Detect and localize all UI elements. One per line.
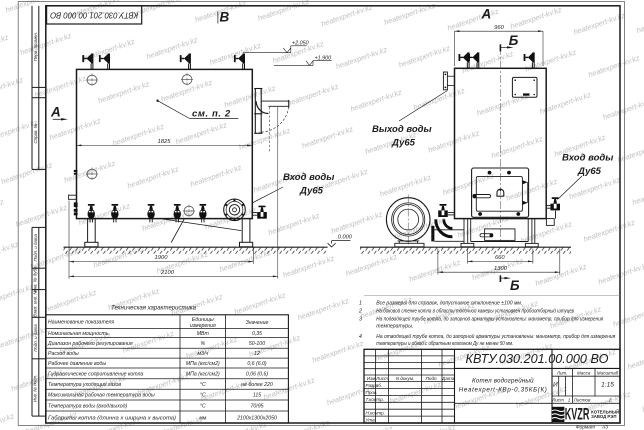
svg-text:1:15: 1:15 bbox=[601, 382, 614, 389]
svg-text:Значение: Значение bbox=[246, 320, 269, 326]
svg-text:3: 3 bbox=[359, 317, 362, 323]
svg-text:Утв.: Утв. bbox=[366, 418, 376, 423]
svg-text:0,06 (0,6): 0,06 (0,6) bbox=[246, 371, 268, 377]
svg-text:мм: мм bbox=[199, 415, 207, 421]
svg-text:Б: Б bbox=[509, 33, 519, 48]
svg-text:И: И bbox=[553, 382, 558, 389]
svg-text:МПа (кгс/см2): МПа (кгс/см2) bbox=[186, 361, 220, 367]
svg-text:N докум.: N докум. bbox=[396, 376, 415, 381]
svg-text:Расход воды: Расход воды bbox=[48, 351, 79, 357]
svg-text:Инв. № дубл.: Инв. № дубл. bbox=[33, 265, 38, 292]
svg-text:Рабочее давление воды: Рабочее давление воды bbox=[48, 361, 106, 367]
svg-text:Перв. примен.: Перв. примен. bbox=[33, 32, 38, 61]
svg-text:Подп. и дата: Подп. и дата bbox=[33, 234, 38, 262]
svg-text:115: 115 bbox=[253, 393, 261, 399]
svg-text:660: 660 bbox=[495, 255, 505, 261]
svg-text:2: 2 bbox=[358, 309, 362, 315]
svg-text:Разраб.: Разраб. bbox=[366, 383, 383, 388]
svg-text:Техническая характеристика: Техническая характеристика bbox=[111, 306, 197, 312]
svg-text:не более 220: не более 220 bbox=[241, 382, 273, 388]
svg-text:Ду65: Ду65 bbox=[577, 166, 602, 177]
svg-text:Б: Б bbox=[510, 278, 520, 293]
svg-text:Листов: Листов bbox=[573, 398, 591, 403]
svg-text:°С: °С bbox=[200, 382, 206, 388]
svg-text:Габариты котла (длинна х ширин: Габариты котла (длинна х ширина х высота… bbox=[48, 415, 176, 421]
svg-text:На подводящей трубе котла, до: На подводящей трубе котла, до запорной а… bbox=[376, 316, 603, 323]
svg-text:А3: А3 bbox=[601, 424, 608, 430]
svg-text:см. п. 2: см. п. 2 bbox=[192, 109, 231, 120]
svg-text:2: 2 bbox=[608, 398, 612, 403]
svg-text:Температура уходящих газов: Температура уходящих газов bbox=[48, 382, 121, 388]
svg-text:0,35: 0,35 bbox=[252, 331, 262, 337]
svg-text:+2.050: +2.050 bbox=[292, 40, 309, 46]
svg-text:Номинальная мощность: Номинальная мощность bbox=[48, 331, 109, 337]
svg-text:На боковой стенке котла в обла: На боковой стенке котла в области топочн… bbox=[376, 308, 574, 315]
svg-text:Инв. № подл.: Инв. № подл. bbox=[33, 375, 38, 402]
svg-text:1825: 1825 bbox=[158, 139, 172, 145]
svg-text:Все размеры для справок, допус: Все размеры для справок, допустимое откл… bbox=[376, 300, 522, 306]
svg-text:Ду65: Ду65 bbox=[299, 186, 324, 197]
svg-text:МВт: МВт bbox=[197, 331, 210, 337]
svg-text:В: В bbox=[220, 10, 230, 25]
svg-text:%: % bbox=[200, 341, 205, 347]
svg-text:70/95: 70/95 bbox=[251, 404, 264, 410]
svg-text:Лист: Лист bbox=[551, 398, 564, 403]
svg-text:Вход воды: Вход воды bbox=[283, 172, 334, 183]
svg-text:Подп. и дата: Подп. и дата bbox=[33, 324, 38, 352]
svg-text:2100х1300х2050: 2100х1300х2050 bbox=[236, 415, 277, 421]
svg-text:Вход воды: Вход воды bbox=[562, 153, 613, 164]
svg-text:м3/ч: м3/ч bbox=[198, 351, 209, 357]
svg-text:Дата: Дата bbox=[441, 376, 455, 381]
svg-text:Н.контр.: Н.контр. bbox=[366, 411, 385, 416]
svg-text:°С: °С bbox=[200, 393, 206, 399]
svg-text:Формат: Формат bbox=[576, 424, 595, 430]
svg-text:Температура воды (вход/выход): Температура воды (вход/выход) bbox=[48, 404, 127, 410]
svg-text:Масштаб: Масштаб bbox=[597, 370, 619, 375]
svg-text:Пров.: Пров. bbox=[366, 390, 378, 395]
svg-text:Гидравлическое сопротивление к: Гидравлическое сопротивление котла bbox=[48, 371, 143, 377]
svg-text:Ду65: Ду65 bbox=[391, 138, 416, 149]
svg-text:1300: 1300 bbox=[494, 266, 508, 272]
svg-text:измерения: измерения bbox=[190, 323, 216, 329]
svg-text:Лит.: Лит. bbox=[556, 370, 568, 375]
svg-text:Heatexpert-КВр-0,35КБ(К): Heatexpert-КВр-0,35КБ(К) bbox=[459, 387, 547, 394]
svg-text:960: 960 bbox=[494, 25, 504, 31]
svg-text:Подп.: Подп. bbox=[426, 376, 438, 381]
svg-text:Наименование показателя: Наименование показателя bbox=[48, 320, 114, 326]
svg-text:Единицы: Единицы bbox=[192, 317, 214, 323]
svg-text:Т.контр.: Т.контр. bbox=[366, 397, 385, 402]
svg-text:°С: °С bbox=[200, 404, 206, 410]
svg-text:Масса: Масса bbox=[577, 370, 591, 375]
svg-text:ЗАВОД РЭП: ЗАВОД РЭП bbox=[591, 414, 616, 419]
svg-text:12: 12 bbox=[254, 351, 260, 357]
svg-text:А: А bbox=[481, 7, 492, 22]
svg-text:Справ. №: Справ. № bbox=[33, 123, 38, 143]
svg-text:температуры и обвод с обратным: температуры и обвод с обратным клапаном … bbox=[376, 341, 513, 347]
svg-text:Лист: Лист bbox=[375, 376, 388, 381]
svg-text:2100: 2100 bbox=[160, 270, 175, 276]
svg-text:КВТУ.030.201.00.000 ВО: КВТУ.030.201.00.000 ВО bbox=[466, 351, 609, 366]
svg-text:50-100: 50-100 bbox=[249, 341, 265, 347]
svg-text:Взам. инв. №: Взам. инв. № bbox=[33, 290, 38, 317]
svg-text:На отводящей трубе котла, до з: На отводящей трубе котла, до запорной ар… bbox=[376, 333, 615, 340]
svg-text:температуры.: температуры. bbox=[376, 323, 413, 329]
svg-text:Выход воды: Выход воды bbox=[372, 124, 432, 135]
svg-text:МПа (кгс/см2): МПа (кгс/см2) bbox=[186, 371, 220, 377]
svg-text:1: 1 bbox=[568, 398, 571, 403]
svg-text:4: 4 bbox=[359, 334, 362, 340]
svg-text:А: А bbox=[50, 105, 61, 120]
svg-text:Котел водогрейный: Котел водогрейный bbox=[472, 378, 534, 385]
svg-text:0,6 (6,0): 0,6 (6,0) bbox=[247, 361, 267, 367]
svg-text:+1.900: +1.900 bbox=[315, 55, 332, 61]
svg-text:1900: 1900 bbox=[155, 255, 169, 261]
svg-text:КВТУ.030.201.00.000 ВО: КВТУ.030.201.00.000 ВО bbox=[50, 11, 138, 21]
svg-text:Максимальная рабочая температу: Максимальная рабочая температура воды bbox=[48, 393, 155, 399]
svg-text:Диапазон рабочего регулировани: Диапазон рабочего регулирования bbox=[47, 341, 133, 347]
svg-text:0.000: 0.000 bbox=[338, 235, 353, 241]
svg-text:1: 1 bbox=[359, 300, 362, 306]
svg-text:KVZR: KVZR bbox=[565, 406, 590, 424]
